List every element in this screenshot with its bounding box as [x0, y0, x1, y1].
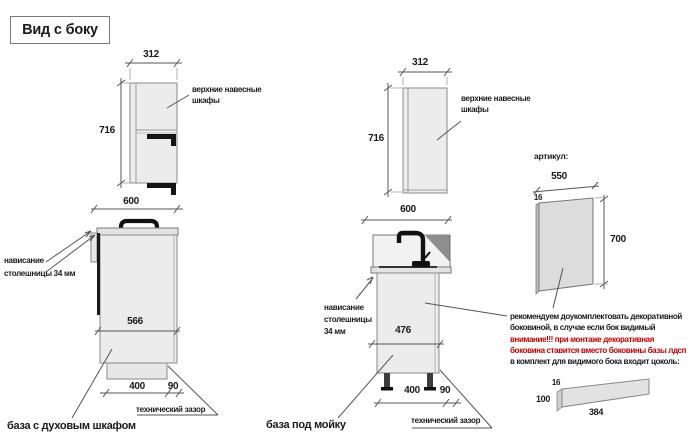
- sink-wall-cabinet: [403, 88, 447, 193]
- dim-oven-wall-width: 312: [135, 49, 167, 60]
- note-line-1: рекомендуем доукомплектовать декоративно…: [510, 311, 686, 322]
- oven-wall-cabinet: [130, 83, 177, 195]
- countertop: [97, 228, 178, 235]
- dim-sink-wall-width: 312: [404, 57, 436, 68]
- oven-base-cabinet: [91, 221, 178, 379]
- dim-sink-plinth-width: 400: [396, 385, 428, 396]
- oven-door-edge: [97, 233, 100, 315]
- arrowhead: [367, 277, 373, 284]
- note-line-3: в комплект для видимого бока входит цоко…: [510, 356, 686, 367]
- oven-overhang-note: нависание столешницы 34 мм: [4, 255, 75, 280]
- sink-base-body: [377, 273, 439, 373]
- dim-panel-height: 700: [604, 234, 632, 245]
- dim-oven-plinth-width: 400: [121, 381, 153, 392]
- note-line-2: боковиной, в случае если бок видимый: [510, 322, 686, 333]
- dim-plinth-height: 100: [534, 394, 552, 404]
- dim-panel-width: 550: [543, 171, 575, 182]
- sink-overhang-note: нависание столешницы 34 мм: [324, 302, 372, 337]
- dim-oven-inner-width: 566: [119, 316, 151, 327]
- dim-oven-wall-height: 716: [94, 125, 120, 136]
- warning-line-2: боковина ставится вместо боковины базы л…: [510, 345, 686, 356]
- article-label: артикул:: [534, 151, 568, 162]
- oven-tech-gap-label: технический зазор: [136, 405, 205, 416]
- dim-plinth-length: 384: [585, 407, 607, 417]
- dim-sink-wall-height: 716: [361, 133, 391, 144]
- dim-sink-tech-gap: 90: [434, 385, 456, 396]
- oven-plinth: [107, 363, 167, 379]
- dim-sink-base-width: 600: [392, 204, 424, 215]
- faucet-base: [412, 261, 430, 267]
- sink-unit-name: база под мойку: [266, 419, 346, 431]
- warning-line-1: внимание!!! при монтаже декоративная: [510, 334, 686, 345]
- sink-tech-gap-label: технический зазор: [411, 416, 480, 427]
- oven-base-body: [100, 235, 177, 363]
- decorative-side-panel: [536, 198, 593, 294]
- drawing-linework: [0, 0, 700, 438]
- dim-panel-thickness: 16: [531, 193, 545, 202]
- dim-oven-tech-gap: 90: [162, 381, 184, 392]
- view-title: Вид с боку: [10, 16, 110, 44]
- oven-unit-name: база с духовым шкафом: [7, 420, 136, 432]
- sink-wall-callout: верхние навесные шкафы: [461, 94, 530, 115]
- dim-plinth-thickness: 16: [548, 378, 564, 387]
- dim-oven-base-width: 600: [115, 196, 147, 207]
- oven-wall-callout: верхние навесные шкафы: [192, 85, 261, 106]
- side-view-drawing: Вид с боку 312 716 верхние навесные шкаф…: [0, 0, 700, 438]
- recommendation-note: рекомендуем доукомплектовать декоративно…: [510, 311, 686, 367]
- bottom-bracket-icon: [147, 183, 176, 195]
- dim-sink-inner-width: 476: [387, 325, 419, 336]
